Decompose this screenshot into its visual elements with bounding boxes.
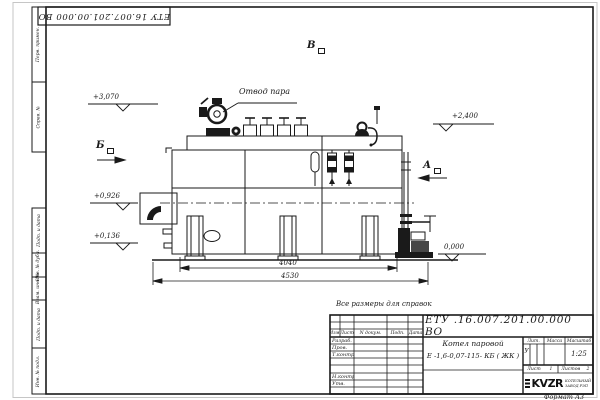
listov-label: Листов xyxy=(561,365,583,373)
reference-note: Все размеры для справок xyxy=(336,301,432,308)
margin-cell-invpodl: Инв. № подл. xyxy=(32,348,46,394)
format-label: Формат А3 xyxy=(544,394,584,400)
col-podp: Подп. xyxy=(387,329,408,337)
scale-label: Масштаб xyxy=(565,337,593,345)
hook-valve xyxy=(355,106,380,147)
view-v-marker-box xyxy=(318,48,325,54)
top-hatches xyxy=(244,118,308,136)
list-value: 1 xyxy=(546,365,556,373)
margin-cell-podp2: Подп. и дата xyxy=(32,300,46,348)
col-ndoc: N докум. xyxy=(354,329,387,337)
elevation-0926: +0,926 xyxy=(94,193,120,200)
drawing-sheet: ЕТУ 16.007.201.00.000 ВО Перв. примен. С… xyxy=(0,0,600,400)
lit-value: У xyxy=(523,346,530,356)
scale-value: 1:25 xyxy=(565,348,593,360)
dimension-4040: 4040 xyxy=(279,260,297,267)
dimension-4530: 4530 xyxy=(281,273,299,280)
kvzr-logo-text: KVZR xyxy=(532,377,563,390)
margin-label: Подп. и дата xyxy=(37,214,42,247)
kvzr-logo-line2: ЗАВОД РЭП xyxy=(565,384,591,388)
col-list: Лист xyxy=(340,329,354,337)
margin-label: Подп. и дата xyxy=(37,308,42,341)
margin-label: Справ. № xyxy=(37,106,42,128)
row-prov: Пров. xyxy=(332,344,354,351)
elevation-3070: +3,070 xyxy=(93,94,119,101)
steam-outlet-callout: Отвод пара xyxy=(239,88,290,96)
elevation-0136: +0,136 xyxy=(94,233,120,240)
kvzr-logo-bars-icon xyxy=(525,379,530,389)
titleblock-doc-number: ЕТУ .16.007.201.00.000 ВО xyxy=(425,316,591,335)
margin-cell-sprav: Справ. № xyxy=(32,82,46,152)
kvzr-logo: KVZR КОТЕЛЬНЫЙ ЗАВОД РЭП xyxy=(525,375,591,392)
margin-cell-podp1: Подп. и дата xyxy=(32,208,46,253)
list-label: Лист xyxy=(527,365,545,373)
col-izm: Изм. xyxy=(330,329,340,337)
top-corner-stamp: ЕТУ 16.007.201.00.000 ВО xyxy=(38,7,170,25)
steam-valve xyxy=(199,98,230,136)
row-nkontr: Н.контр. xyxy=(332,373,354,380)
level-gauges xyxy=(311,150,354,186)
margin-cell-vzam: Взам. инв. № xyxy=(32,277,46,300)
elevation-2400: +2,400 xyxy=(452,113,478,120)
margin-label: Инв. № подл. xyxy=(37,355,42,386)
mass-label: Масса xyxy=(544,337,565,345)
view-a-marker-box xyxy=(434,168,441,174)
view-b-marker-box xyxy=(107,148,114,154)
view-label-v: В xyxy=(307,41,315,51)
row-razrab: Разраб. xyxy=(332,337,354,344)
product-name: Котел паровой xyxy=(423,338,523,349)
manhole xyxy=(204,231,220,242)
row-tkontr: Т.контр. xyxy=(332,351,354,358)
kvzr-logo-subtitle: КОТЕЛЬНЫЙ ЗАВОД РЭП xyxy=(565,379,591,388)
product-type: Е -1,6-0,07-115- КБ ( ЖК ) xyxy=(423,350,523,361)
margin-cell-perv: Перв. примен. xyxy=(32,7,46,82)
elevation-0000: 0,000 xyxy=(444,244,464,251)
margin-label: Перв. примен. xyxy=(37,27,42,62)
kvzr-logo-line1: КОТЕЛЬНЫЙ xyxy=(565,379,591,383)
boiler-linework xyxy=(140,98,458,260)
col-data: Дата xyxy=(408,329,423,337)
view-label-a: А xyxy=(423,161,431,171)
lit-label: Лит. xyxy=(523,337,544,345)
row-utv: Утв. xyxy=(332,380,354,387)
view-arrows xyxy=(97,103,447,181)
top-stamp-text: ЕТУ 16.007.201.00.000 ВО xyxy=(38,11,170,21)
listov-value: 2 xyxy=(583,365,593,373)
view-label-b: Б xyxy=(96,141,105,151)
support-legs xyxy=(185,216,380,260)
